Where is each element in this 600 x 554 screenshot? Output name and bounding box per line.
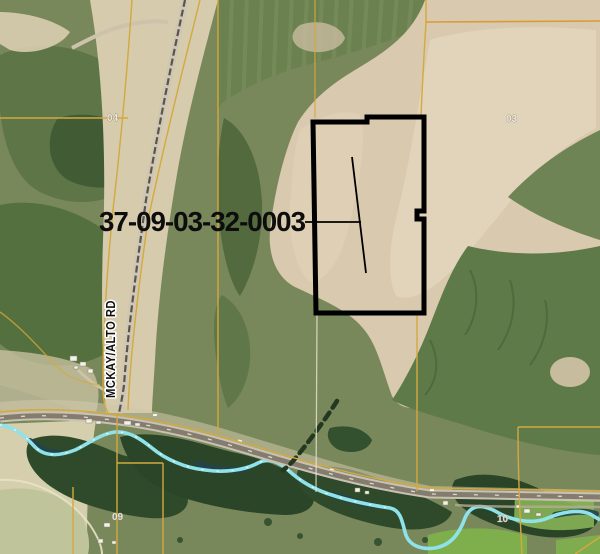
parcel-id-label: 37-09-03-32-0003 — [99, 206, 305, 237]
section-number-sw: 09 — [112, 512, 124, 523]
road-name-label: MCKAY/ALTO RD — [103, 300, 118, 398]
parcel-map-window: 37-09-03-32-0003 MCKAY/ALTO RD 04 03 09 … — [0, 0, 600, 554]
parcel-map-canvas[interactable]: 37-09-03-32-0003 MCKAY/ALTO RD 04 03 09 … — [0, 0, 600, 554]
section-number-nw: 04 — [107, 113, 119, 124]
section-line-orange — [426, 21, 600, 22]
section-number-se: 10 — [497, 514, 509, 525]
section-number-ne: 03 — [506, 114, 518, 125]
